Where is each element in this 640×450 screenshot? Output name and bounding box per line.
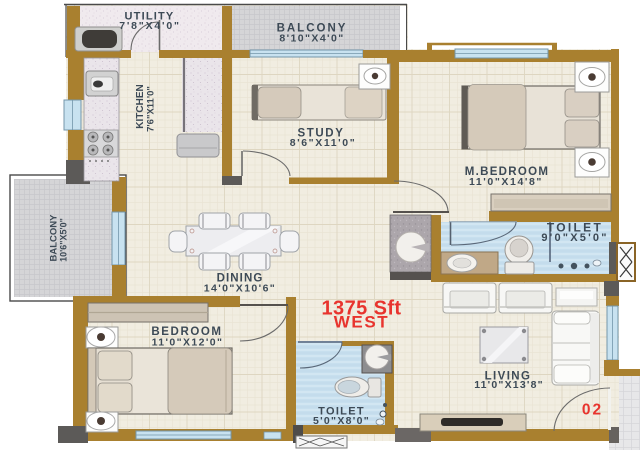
svg-text:8'10"X4'0": 8'10"X4'0": [279, 33, 344, 45]
svg-text:11'0"X12'0": 11'0"X12'0": [152, 337, 224, 349]
svg-text:7'8"X4'0": 7'8"X4'0": [119, 20, 181, 32]
svg-text:5'0"X8'0": 5'0"X8'0": [313, 415, 370, 427]
svg-text:9'0"X5'0": 9'0"X5'0": [541, 232, 608, 244]
svg-text:11'0"X14'8": 11'0"X14'8": [469, 176, 543, 188]
svg-text:WEST: WEST: [334, 313, 390, 332]
svg-text:10'6"X5'0": 10'6"X5'0": [59, 218, 69, 262]
svg-text:02: 02: [582, 402, 603, 419]
svg-text:14'0"X10'6": 14'0"X10'6": [204, 283, 276, 295]
svg-text:7'6"X11'0": 7'6"X11'0": [146, 86, 157, 132]
svg-text:8'6"X11'0": 8'6"X11'0": [290, 137, 357, 149]
svg-text:KITCHEN: KITCHEN: [135, 84, 146, 128]
svg-text:11'0"X13'8": 11'0"X13'8": [474, 379, 544, 391]
